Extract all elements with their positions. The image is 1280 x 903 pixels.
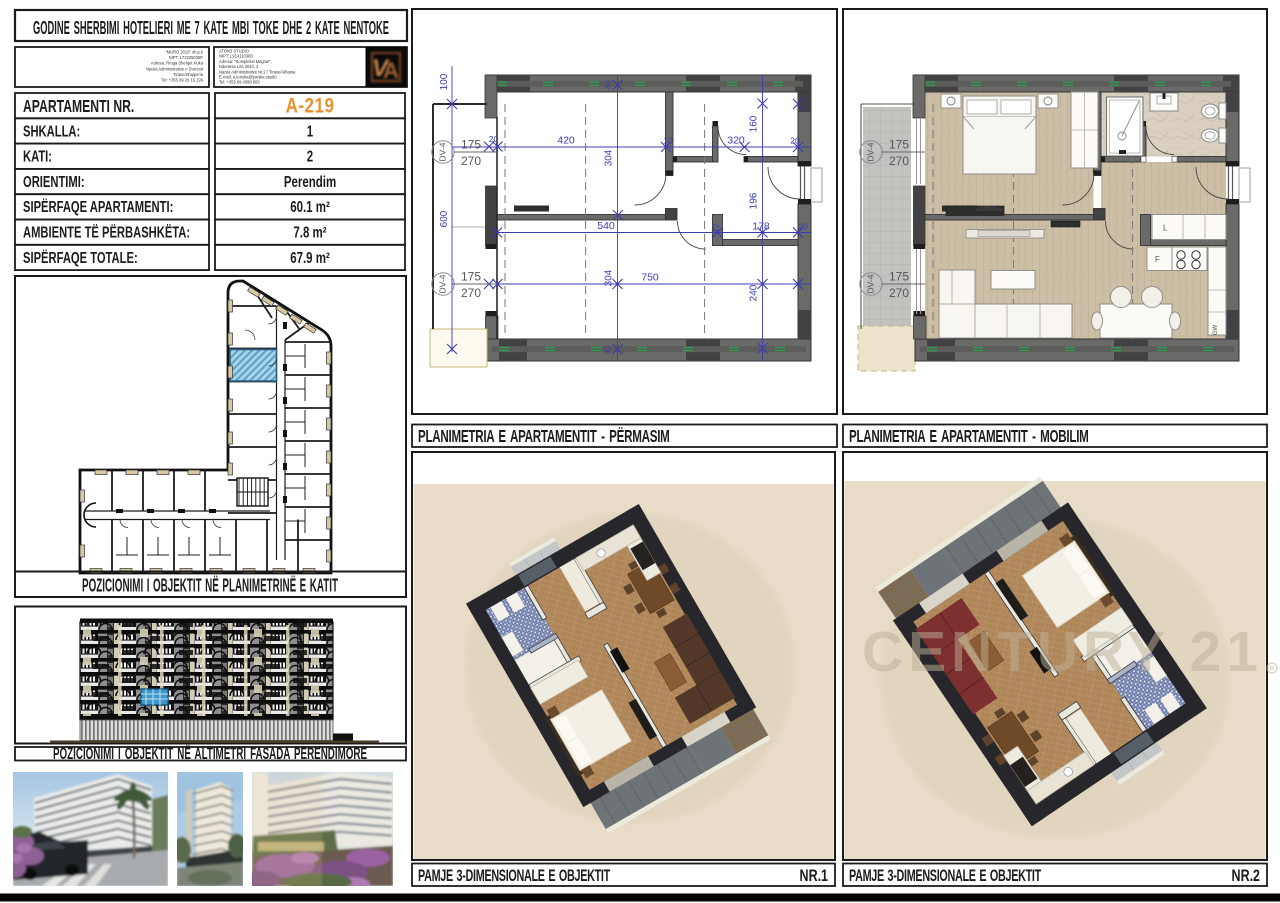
- svg-text:DV-4: DV-4: [438, 274, 448, 293]
- svg-text:60.1 m²: 60.1 m²: [290, 199, 330, 216]
- svg-text:196: 196: [749, 192, 760, 209]
- svg-text:PAMJE 3-DIMENSIONALE E OBJEKTI: PAMJE 3-DIMENSIONALE E OBJEKTIT: [849, 867, 1042, 885]
- svg-text:175: 175: [889, 138, 909, 152]
- svg-text:POZICIONIMI I OBJEKTIT NË PLAN: POZICIONIMI I OBJEKTIT NË PLANIMETRINË E…: [82, 576, 338, 596]
- svg-text:Njesia Administrative e Durres: Njesia Administrative e Durresit: [146, 66, 204, 71]
- svg-text:Perendim: Perendim: [284, 173, 336, 190]
- svg-text:270: 270: [889, 286, 909, 300]
- svg-text:175: 175: [889, 270, 909, 284]
- svg-text:30: 30: [603, 80, 613, 90]
- svg-text:750: 750: [641, 272, 659, 284]
- svg-text:A: A: [383, 58, 399, 83]
- svg-text:A-219: A-219: [286, 95, 335, 118]
- svg-text:PLANIMETRIA E APARTAMENTIT - P: PLANIMETRIA E APARTAMENTIT - PËRMASIM: [418, 427, 670, 447]
- svg-text:2: 2: [307, 148, 314, 165]
- svg-text:L: L: [1163, 224, 1168, 233]
- svg-text:420: 420: [557, 135, 575, 147]
- svg-text:PLANIMETRIA E APARTAMENTIT - M: PLANIMETRIA E APARTAMENTIT - MOBILIM: [849, 428, 1089, 447]
- svg-text:304: 304: [604, 149, 615, 166]
- svg-text:270: 270: [889, 154, 909, 168]
- svg-text:PAMJE 3-DIMENSIONALE E OBJEKTI: PAMJE 3-DIMENSIONALE E OBJEKTIT: [418, 867, 611, 885]
- svg-text:CENTURY 21: CENTURY 21: [862, 620, 1266, 684]
- svg-text:Tel: +355 69 4588 893: Tel: +355 69 4588 893: [219, 80, 260, 85]
- svg-text:20: 20: [798, 222, 808, 232]
- svg-text:APARTAMENTI NR.: APARTAMENTI NR.: [23, 97, 134, 117]
- svg-text:Tel: +355 69 20 16 196: Tel: +355 69 20 16 196: [161, 78, 203, 83]
- svg-text:Adresa: Rruga Shefqet Kuka: Adresa: Rruga Shefqet Kuka: [151, 61, 204, 66]
- svg-text:175: 175: [461, 270, 481, 284]
- svg-text:7.8 m²: 7.8 m²: [293, 224, 327, 241]
- svg-text:F: F: [1155, 255, 1160, 264]
- svg-text:270: 270: [461, 286, 481, 300]
- svg-text:175: 175: [461, 138, 481, 152]
- svg-text:NR.2: NR.2: [1232, 867, 1260, 885]
- svg-text:20: 20: [489, 134, 499, 144]
- svg-text:POZICIONIMI I OBJEKTIT NË ALTI: POZICIONIMI I OBJEKTIT NË ALTIMETRI FASA…: [53, 744, 367, 763]
- svg-text:240: 240: [749, 284, 760, 301]
- svg-text:SIPËRFAQE APARTAMENTI:: SIPËRFAQE APARTAMENTI:: [23, 197, 173, 216]
- svg-text:Tirane/Shqiperia: Tirane/Shqiperia: [173, 72, 204, 77]
- svg-text:600: 600: [439, 210, 450, 227]
- svg-text:12: 12: [712, 223, 721, 232]
- svg-text:20: 20: [790, 136, 800, 146]
- svg-text:100: 100: [439, 73, 450, 90]
- svg-text:1: 1: [307, 123, 314, 140]
- svg-text:67.9 m²: 67.9 m²: [290, 249, 330, 266]
- svg-text:SIPËRFAQE TOTALE:: SIPËRFAQE TOTALE:: [23, 248, 138, 267]
- svg-text:SHKALLA:: SHKALLA:: [23, 122, 80, 139]
- svg-text:10: 10: [663, 136, 673, 146]
- svg-text:270: 270: [461, 154, 481, 168]
- svg-text:ORIENTIMI:: ORIENTIMI:: [23, 173, 85, 190]
- svg-text:"MURO 2015" sh.p.k: "MURO 2015" sh.p.k: [165, 50, 204, 55]
- svg-text:DV-4: DV-4: [866, 274, 876, 293]
- svg-text:DV-4: DV-4: [866, 142, 876, 161]
- svg-text:GW: GW: [1213, 325, 1219, 336]
- svg-text:160: 160: [749, 115, 760, 132]
- svg-text:GODINE SHERBIMI HOTELIERI ME 7: GODINE SHERBIMI HOTELIERI ME 7 KATE MBI …: [33, 19, 389, 39]
- svg-text:178: 178: [752, 221, 770, 233]
- svg-text:DV-4: DV-4: [438, 142, 448, 161]
- svg-text:R: R: [1269, 666, 1274, 673]
- svg-text:NR.1: NR.1: [800, 867, 828, 885]
- svg-text:540: 540: [597, 220, 615, 232]
- svg-text:AMBIENTE TË PËRBASHKËTA:: AMBIENTE TË PËRBASHKËTA:: [23, 222, 190, 241]
- svg-text:320: 320: [727, 135, 745, 147]
- svg-text:NIPT: L72225035P: NIPT: L72225035P: [169, 55, 204, 60]
- svg-text:304: 304: [604, 269, 615, 286]
- svg-text:KATI:: KATI:: [23, 148, 52, 165]
- svg-text:30: 30: [603, 345, 613, 355]
